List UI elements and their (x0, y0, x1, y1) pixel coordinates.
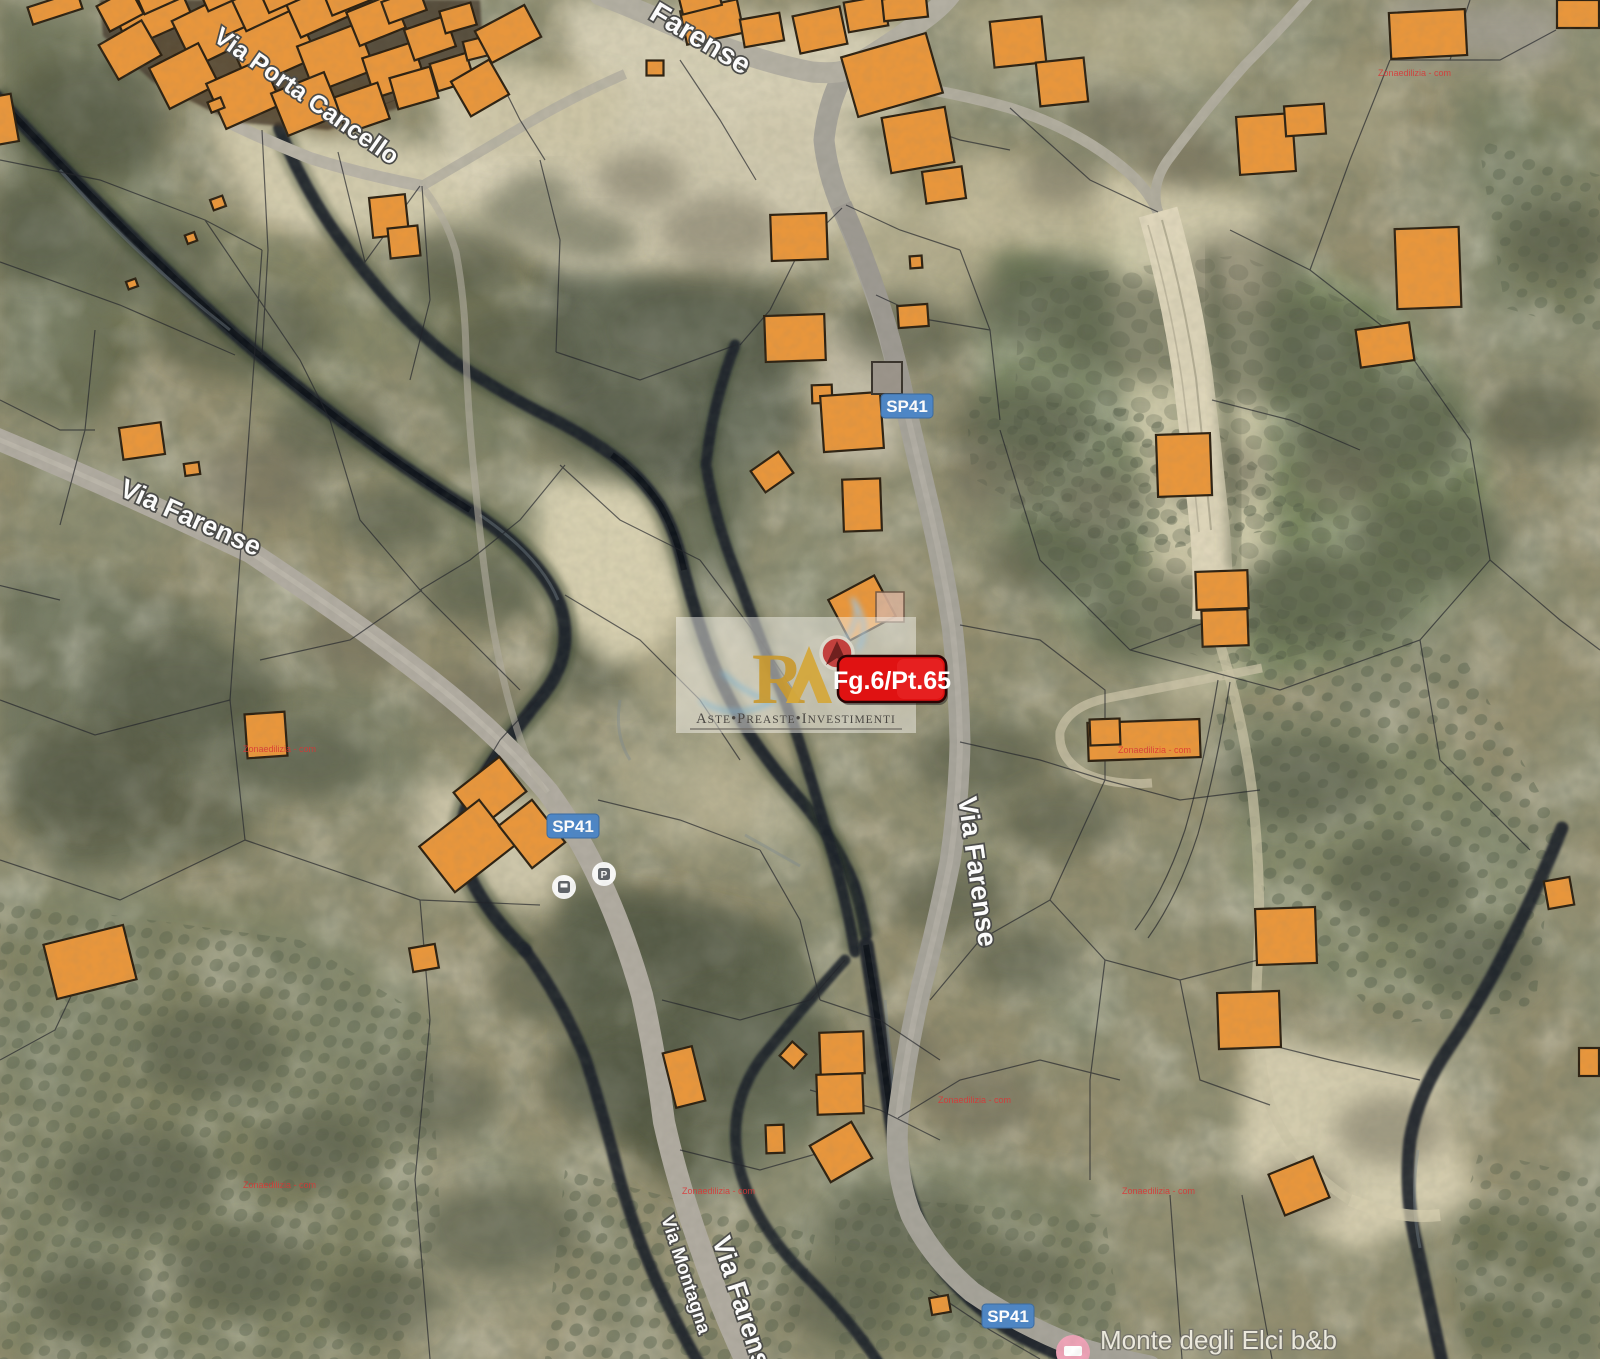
svg-text:Fg.6/Pt.65: Fg.6/Pt.65 (833, 667, 951, 695)
svg-text:ASTE•PREASTE•INVESTIMENTI: ASTE•PREASTE•INVESTIMENTI (696, 711, 896, 727)
